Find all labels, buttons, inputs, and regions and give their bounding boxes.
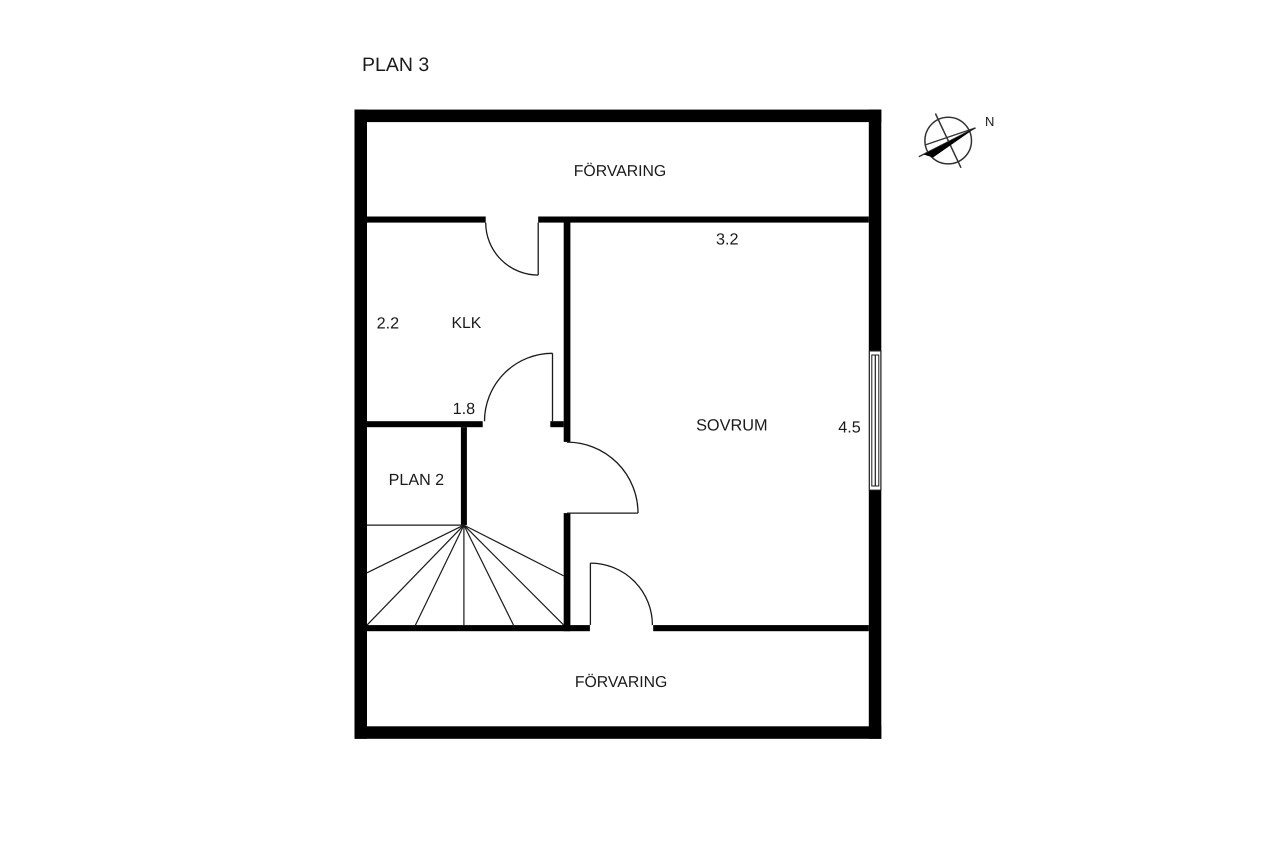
svg-text:PLAN 3: PLAN 3: [362, 54, 429, 76]
svg-text:N: N: [985, 114, 994, 129]
svg-text:SOVRUM: SOVRUM: [696, 416, 767, 434]
svg-text:PLAN 2: PLAN 2: [389, 471, 445, 489]
svg-text:2.2: 2.2: [377, 315, 400, 333]
svg-text:KLK: KLK: [451, 315, 481, 332]
svg-text:FÖRVARING: FÖRVARING: [574, 162, 666, 180]
svg-text:1.8: 1.8: [453, 400, 476, 418]
svg-text:3.2: 3.2: [716, 231, 739, 249]
svg-text:FÖRVARING: FÖRVARING: [575, 673, 667, 691]
svg-text:4.5: 4.5: [838, 419, 861, 437]
